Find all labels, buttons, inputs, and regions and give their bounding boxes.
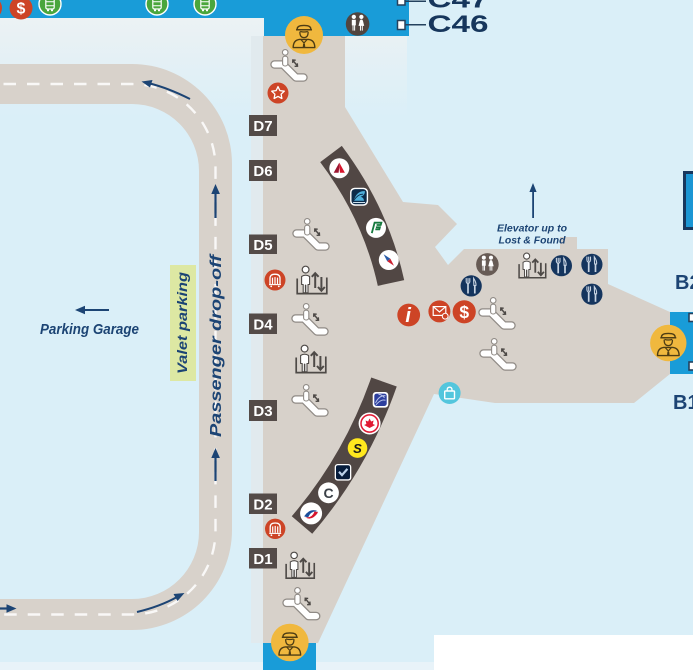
svg-text:D6: D6 xyxy=(253,163,272,180)
svg-text:C46: C46 xyxy=(428,11,489,38)
svg-text:D4: D4 xyxy=(253,317,273,334)
svg-text:$: $ xyxy=(17,1,26,18)
svg-text:$: $ xyxy=(459,302,469,322)
svg-text:Parking Garage: Parking Garage xyxy=(40,321,139,338)
svg-text:Elevator up to: Elevator up to xyxy=(497,223,568,235)
svg-text:D7: D7 xyxy=(253,118,272,135)
svg-text:B2: B2 xyxy=(675,272,693,294)
svg-text:Passenger drop-off: Passenger drop-off xyxy=(208,253,225,437)
svg-text:D1: D1 xyxy=(253,551,272,568)
svg-text:D2: D2 xyxy=(253,497,272,514)
svg-text:Lost & Found: Lost & Found xyxy=(499,235,567,247)
svg-text:D5: D5 xyxy=(253,237,272,254)
svg-text:B1: B1 xyxy=(673,392,693,414)
svg-text:Valet parking: Valet parking xyxy=(175,271,190,374)
svg-text:D3: D3 xyxy=(253,403,272,420)
svg-text:i: i xyxy=(405,305,411,327)
svg-text:C: C xyxy=(323,485,333,501)
svg-text:S: S xyxy=(353,441,362,456)
